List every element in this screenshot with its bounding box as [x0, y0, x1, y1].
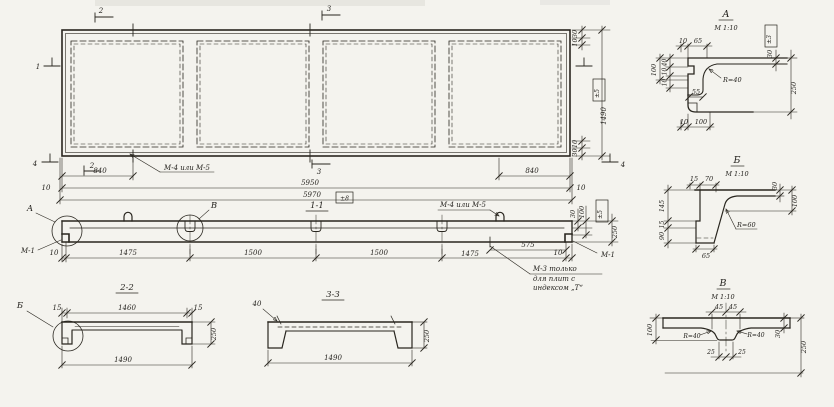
section-marker-2-top: 2: [98, 7, 104, 15]
dim-15-top: 15: [690, 175, 698, 183]
dim-30-top: 30: [571, 30, 579, 38]
dim-100-left: 100: [650, 64, 658, 76]
drawing-svg: 2 3 1 4 2 3 4 М-4 или М-5 840 840 5950 5…: [0, 0, 834, 407]
note-m3-line3: индексом „Т“: [533, 284, 583, 292]
dim-10-right: 10: [577, 184, 586, 192]
dim-45-left: 45: [714, 303, 723, 311]
dim-1490-width: 1490: [600, 107, 608, 125]
dim-10-left: 10: [50, 249, 59, 257]
radius-r40-left-label: R=40: [682, 333, 700, 340]
radius-r60-label: R=60: [736, 221, 756, 229]
dim-100-rib: 100: [791, 195, 799, 207]
dim-70-top: 70: [705, 175, 713, 183]
detail-a-scale: М 1:10: [713, 24, 737, 32]
dim-250-depth: 250: [790, 82, 798, 95]
dim-25-left: 25: [706, 349, 715, 356]
detail-b-title: Б: [733, 155, 741, 166]
dim-5970: 5970: [303, 191, 321, 199]
mark-m1-right: М-1: [600, 251, 615, 259]
dim-1490: 1490: [114, 356, 132, 364]
dim-10-right: 10: [554, 249, 563, 257]
dim-30-flange: 30: [569, 210, 577, 218]
dim-840-left: 840: [93, 167, 107, 175]
section-marker-3-top: 3: [327, 5, 332, 13]
mark-m1-left: М-1: [20, 247, 35, 255]
dim-30-bottom: 30: [571, 148, 579, 156]
dim-40-left: 40: [662, 59, 669, 68]
tolerance-depth: ±5: [597, 210, 604, 219]
dim-10-bottom: 10: [680, 118, 688, 126]
callout-b-label: Б: [16, 301, 24, 311]
dim-100-left: 100: [646, 324, 654, 336]
dim-10-top: 10: [679, 37, 687, 45]
detail-v-title: В: [719, 278, 727, 289]
dim-145-left: 145: [658, 200, 666, 212]
dim-25-right: 25: [737, 349, 746, 356]
dim-10-bottom: 10: [571, 140, 579, 148]
dim-45-right: 45: [728, 303, 737, 311]
section-marker-4-right: 4: [620, 161, 625, 169]
dim-10-left-a: 10: [662, 68, 669, 76]
callout-b-label: В: [210, 201, 217, 211]
tolerance-a: ±3: [766, 35, 773, 44]
dim-10-left-b: 10: [662, 79, 669, 87]
dim-90-left: 90: [658, 232, 666, 240]
radius-r40-right-label: R=40: [746, 332, 764, 339]
dim-10-left: 10: [42, 184, 51, 192]
dim-1500-b: 1500: [370, 249, 388, 257]
dim-15-right: 15: [194, 304, 203, 312]
dim-15-left: 15: [53, 304, 62, 312]
dim-100-rib: 100: [578, 206, 586, 218]
section-3-3-title: 3-3: [326, 290, 340, 300]
dim-30-flange: 30: [766, 50, 774, 58]
scan-artifact: [95, 0, 425, 6]
tolerance-width: ±5: [594, 89, 601, 98]
dim-15-left: 15: [659, 221, 666, 229]
detail-v-scale: М 1:10: [710, 293, 734, 301]
section-marker-4-left: 4: [32, 160, 37, 168]
dim-30-flange: 30: [774, 330, 782, 338]
dim-40: 40: [252, 300, 262, 308]
blueprint-sheet: 2 3 1 4 2 3 4 М-4 или М-5 840 840 5950 5…: [0, 0, 834, 407]
section-2-2-title: 2-2: [119, 283, 134, 293]
dim-250-depth: 250: [210, 328, 218, 341]
dim-1500-a: 1500: [244, 249, 262, 257]
paper-background: [0, 0, 834, 407]
dim-575: 575: [521, 241, 535, 249]
dim-65-bottom: 65: [702, 252, 710, 260]
scan-artifact: [540, 0, 610, 5]
dim-1475-left: 1475: [119, 249, 137, 257]
dim-250-depth: 250: [611, 226, 619, 239]
note-m3-line1: М-3 только: [532, 265, 577, 273]
dim-10-top: 10: [571, 38, 579, 46]
dim-30-flange: 30: [771, 182, 779, 190]
callout-a-label: А: [26, 204, 33, 214]
section-marker-1-left: 1: [36, 63, 40, 71]
detail-a-title: А: [721, 9, 729, 20]
note-m3-line2: для плит с: [533, 275, 575, 283]
tolerance-length: ±8: [340, 196, 349, 203]
radius-r40-label: R=40: [722, 76, 742, 84]
dim-100-bottom: 100: [695, 118, 707, 126]
dim-5950: 5950: [301, 179, 319, 187]
dim-1490: 1490: [324, 354, 342, 362]
section-1-1-title: 1-1: [310, 201, 324, 211]
dim-250-depth: 250: [800, 341, 808, 354]
dim-1475-right: 1475: [461, 250, 479, 258]
dim-1460: 1460: [118, 304, 136, 312]
dim-250-depth: 250: [423, 330, 431, 343]
weld-mark-label-section: М-4 или М-5: [439, 201, 486, 209]
detail-b-scale: М 1:10: [724, 170, 748, 178]
dim-840-right: 840: [525, 167, 539, 175]
dim-55-stem: 55: [692, 88, 700, 96]
dim-65-top: 65: [694, 37, 702, 45]
section-marker-3-bottom: 3: [317, 168, 322, 176]
weld-mark-label: М-4 или М-5: [163, 164, 210, 172]
